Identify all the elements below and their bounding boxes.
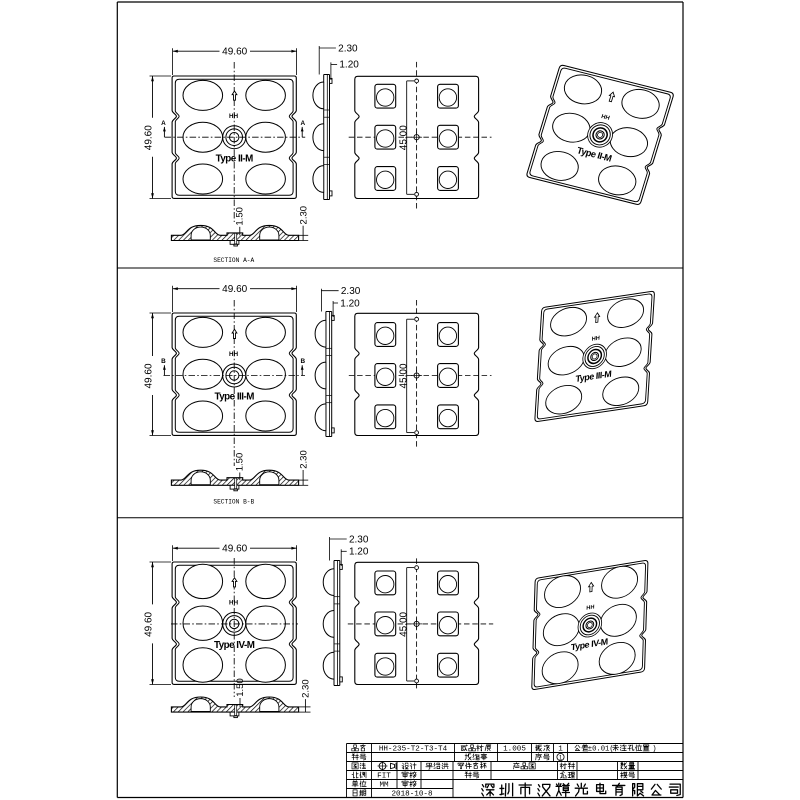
svg-text:1.50: 1.50 bbox=[235, 453, 246, 472]
svg-text:49.60: 49.60 bbox=[222, 284, 247, 295]
svg-text:±0.01(: ±0.01( bbox=[588, 746, 614, 754]
svg-text:): ) bbox=[652, 746, 656, 754]
svg-text:1.20: 1.20 bbox=[339, 60, 359, 71]
svg-text:2.30: 2.30 bbox=[298, 206, 309, 225]
svg-text:HH: HH bbox=[591, 335, 600, 342]
svg-text:49.60: 49.60 bbox=[144, 125, 155, 150]
svg-text:1.005: 1.005 bbox=[503, 746, 526, 754]
svg-text:49.60: 49.60 bbox=[222, 47, 247, 58]
svg-text:2.30: 2.30 bbox=[338, 43, 358, 54]
svg-text:2018-10-8: 2018-10-8 bbox=[391, 791, 432, 799]
svg-text:49.60: 49.60 bbox=[144, 363, 155, 388]
svg-text:Type II-M: Type II-M bbox=[216, 153, 254, 164]
svg-text:A: A bbox=[161, 120, 166, 127]
svg-text:2.30: 2.30 bbox=[349, 534, 369, 545]
svg-text:B: B bbox=[161, 358, 166, 365]
svg-text:45.00: 45.00 bbox=[398, 611, 409, 636]
svg-text:HH: HH bbox=[229, 113, 239, 120]
svg-text:B: B bbox=[300, 358, 305, 365]
svg-text:2.30: 2.30 bbox=[341, 286, 361, 297]
svg-text:1.50: 1.50 bbox=[235, 207, 246, 226]
svg-text:45.00: 45.00 bbox=[398, 363, 409, 388]
svg-text:49.60: 49.60 bbox=[144, 611, 155, 636]
svg-text:1: 1 bbox=[558, 746, 563, 754]
svg-text:1.20: 1.20 bbox=[349, 547, 369, 558]
svg-text:FIT: FIT bbox=[377, 773, 391, 781]
svg-text:49.60: 49.60 bbox=[222, 544, 247, 555]
svg-text:SECTION B-B: SECTION B-B bbox=[213, 499, 254, 506]
svg-text:MM: MM bbox=[379, 782, 389, 790]
svg-text:HH: HH bbox=[229, 600, 239, 607]
svg-text:Type IV-M: Type IV-M bbox=[214, 640, 255, 651]
svg-text:HH-235-T2-T3-T4: HH-235-T2-T3-T4 bbox=[379, 746, 448, 754]
svg-text:1.50: 1.50 bbox=[235, 678, 246, 697]
svg-text:2.30: 2.30 bbox=[301, 679, 312, 698]
svg-text:SECTION A-A: SECTION A-A bbox=[213, 257, 254, 264]
svg-text:Type III-M: Type III-M bbox=[214, 392, 254, 403]
svg-text:A: A bbox=[300, 120, 305, 127]
svg-text:45.00: 45.00 bbox=[398, 125, 409, 150]
svg-text:HH: HH bbox=[229, 351, 239, 358]
svg-text:2.30: 2.30 bbox=[298, 450, 309, 469]
svg-text:1.20: 1.20 bbox=[340, 298, 360, 309]
